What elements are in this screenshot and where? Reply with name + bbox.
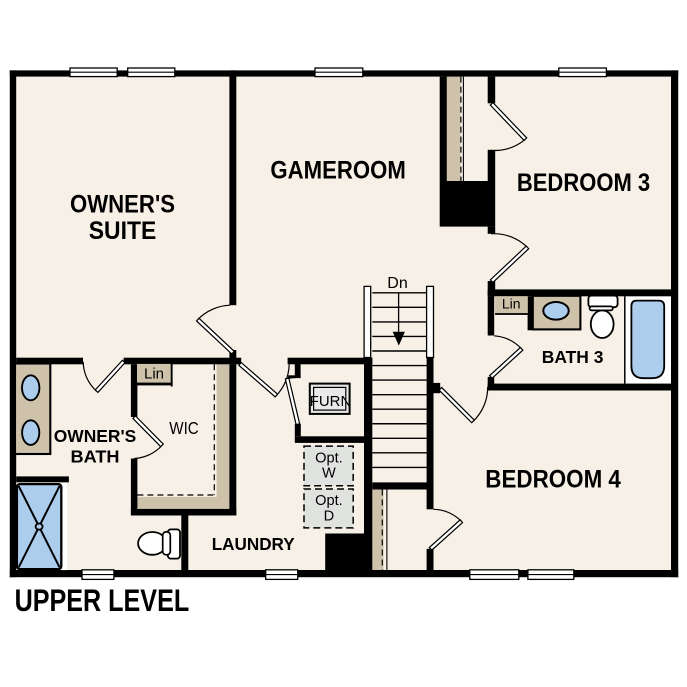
svg-text:UPPER LEVEL: UPPER LEVEL (15, 582, 190, 618)
svg-text:W: W (322, 466, 336, 482)
svg-text:WIC: WIC (169, 418, 199, 438)
svg-text:Dn: Dn (387, 275, 407, 292)
svg-text:Lin: Lin (502, 296, 521, 312)
svg-text:OWNER'S: OWNER'S (70, 191, 175, 218)
svg-text:LAUNDRY: LAUNDRY (212, 534, 296, 554)
svg-text:Opt.: Opt. (315, 450, 343, 466)
svg-text:OWNER'S: OWNER'S (54, 426, 137, 446)
svg-text:BEDROOM 3: BEDROOM 3 (517, 170, 650, 197)
svg-text:BATH: BATH (71, 447, 120, 467)
svg-text:SUITE: SUITE (89, 218, 157, 245)
svg-text:BATH 3: BATH 3 (542, 347, 604, 367)
svg-text:FURN: FURN (310, 393, 352, 410)
svg-text:GAMEROOM: GAMEROOM (270, 158, 406, 185)
svg-text:D: D (324, 509, 335, 525)
svg-text:Lin: Lin (144, 366, 164, 383)
svg-text:BEDROOM 4: BEDROOM 4 (485, 467, 621, 494)
svg-text:Opt.: Opt. (315, 493, 343, 509)
